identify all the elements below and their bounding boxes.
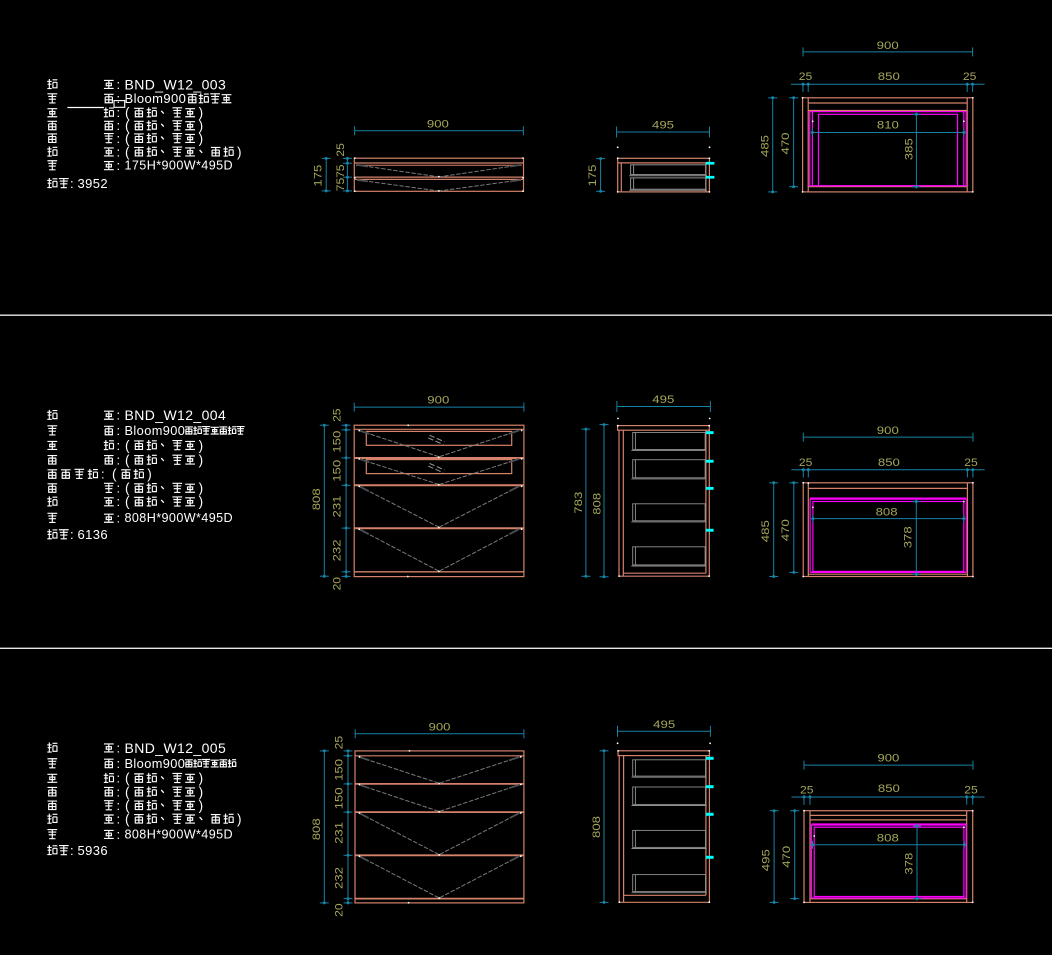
svg-text:485: 485 — [759, 135, 771, 157]
svg-text:): ) — [147, 467, 152, 482]
svg-text:BND_W12_005: BND_W12_005 — [125, 740, 227, 756]
svg-text:378: 378 — [903, 526, 915, 548]
svg-text:25: 25 — [332, 408, 344, 422]
svg-text:850: 850 — [878, 783, 900, 795]
svg-text::: : — [117, 408, 121, 423]
svg-text:808H*900W*495D: 808H*900W*495D — [125, 511, 234, 525]
svg-text:): ) — [199, 438, 204, 453]
svg-text::: : — [117, 756, 121, 771]
svg-text:900: 900 — [427, 395, 449, 407]
svg-text:810: 810 — [877, 120, 899, 132]
svg-text:470: 470 — [780, 519, 792, 541]
svg-text::: : — [117, 158, 121, 173]
svg-text:(: ( — [112, 467, 117, 482]
svg-text:BND_W12_004: BND_W12_004 — [125, 407, 227, 423]
svg-text::: : — [117, 494, 121, 509]
svg-text:175H*900W*495D: 175H*900W*495D — [125, 159, 234, 173]
svg-text:900: 900 — [427, 119, 449, 131]
svg-text:175: 175 — [587, 165, 599, 187]
svg-text:470: 470 — [781, 846, 793, 868]
svg-text::: : — [117, 827, 121, 842]
svg-text::: : — [117, 452, 121, 467]
svg-text:150: 150 — [334, 759, 346, 781]
svg-text:3952: 3952 — [78, 176, 109, 191]
svg-text:385: 385 — [904, 138, 916, 160]
svg-text:850: 850 — [878, 457, 900, 469]
svg-text:25: 25 — [799, 457, 813, 469]
svg-text:232: 232 — [332, 539, 344, 561]
svg-text:808: 808 — [311, 488, 323, 510]
svg-text:Bloom900: Bloom900 — [125, 423, 186, 438]
svg-text:): ) — [199, 131, 204, 146]
svg-text::: : — [117, 438, 121, 453]
svg-text:231: 231 — [332, 496, 344, 518]
svg-text:25: 25 — [335, 143, 347, 157]
svg-text:808: 808 — [591, 493, 603, 515]
svg-text:783: 783 — [573, 492, 585, 514]
svg-text:(: ( — [125, 494, 130, 509]
svg-text:900: 900 — [877, 753, 899, 765]
svg-text:): ) — [237, 144, 242, 159]
svg-text:): ) — [199, 494, 204, 509]
svg-text:Bloom900: Bloom900 — [125, 91, 187, 106]
svg-text:495: 495 — [761, 849, 773, 871]
svg-text:(: ( — [125, 438, 130, 453]
svg-text:(: ( — [125, 452, 130, 467]
svg-text:25: 25 — [334, 736, 346, 750]
svg-text:5936: 5936 — [78, 843, 109, 858]
svg-text::: : — [70, 527, 74, 542]
svg-text:175: 175 — [313, 165, 325, 187]
svg-text::: : — [117, 91, 121, 106]
svg-text:150: 150 — [332, 431, 344, 453]
svg-text:470: 470 — [780, 133, 792, 155]
svg-text:808: 808 — [876, 506, 898, 518]
svg-text:808: 808 — [311, 818, 323, 840]
svg-text::: : — [117, 511, 121, 526]
svg-text::: : — [117, 423, 121, 438]
svg-text:75: 75 — [335, 178, 347, 192]
svg-text:25: 25 — [963, 71, 977, 83]
svg-text::: : — [70, 843, 74, 858]
svg-text:(: ( — [125, 811, 130, 826]
svg-text:25: 25 — [964, 784, 978, 796]
svg-text:231: 231 — [334, 822, 346, 844]
svg-text:485: 485 — [760, 520, 772, 542]
svg-text:150: 150 — [332, 460, 344, 482]
svg-text::: : — [101, 467, 105, 482]
svg-text:BND_W12_003: BND_W12_003 — [125, 76, 227, 92]
svg-text:150: 150 — [334, 787, 346, 809]
svg-text:Bloom900: Bloom900 — [125, 756, 186, 771]
svg-text:25: 25 — [800, 784, 814, 796]
svg-text::: : — [117, 740, 121, 755]
svg-text::: : — [117, 77, 121, 92]
svg-text:378: 378 — [904, 853, 916, 875]
svg-text:808: 808 — [591, 816, 603, 838]
svg-text:): ) — [237, 811, 242, 826]
svg-text:900: 900 — [877, 425, 899, 437]
svg-text:(: ( — [125, 144, 130, 159]
svg-text:25: 25 — [799, 71, 813, 83]
svg-text::: : — [117, 811, 121, 826]
svg-text:850: 850 — [878, 71, 900, 83]
svg-text::: : — [70, 176, 74, 191]
svg-text:808: 808 — [877, 832, 899, 844]
svg-text:75: 75 — [335, 164, 347, 178]
svg-text:): ) — [199, 798, 204, 813]
svg-text:25: 25 — [964, 457, 978, 469]
svg-text:495: 495 — [653, 719, 675, 731]
svg-text:495: 495 — [652, 119, 674, 131]
svg-text:900: 900 — [429, 721, 451, 733]
svg-text:808H*900W*495D: 808H*900W*495D — [125, 827, 234, 841]
svg-text:20: 20 — [332, 577, 344, 591]
svg-text:232: 232 — [334, 867, 346, 889]
svg-text:900: 900 — [877, 40, 899, 52]
svg-text:495: 495 — [652, 394, 674, 406]
svg-text:20: 20 — [334, 903, 346, 917]
svg-text:): ) — [199, 452, 204, 467]
svg-text:6136: 6136 — [78, 527, 109, 542]
